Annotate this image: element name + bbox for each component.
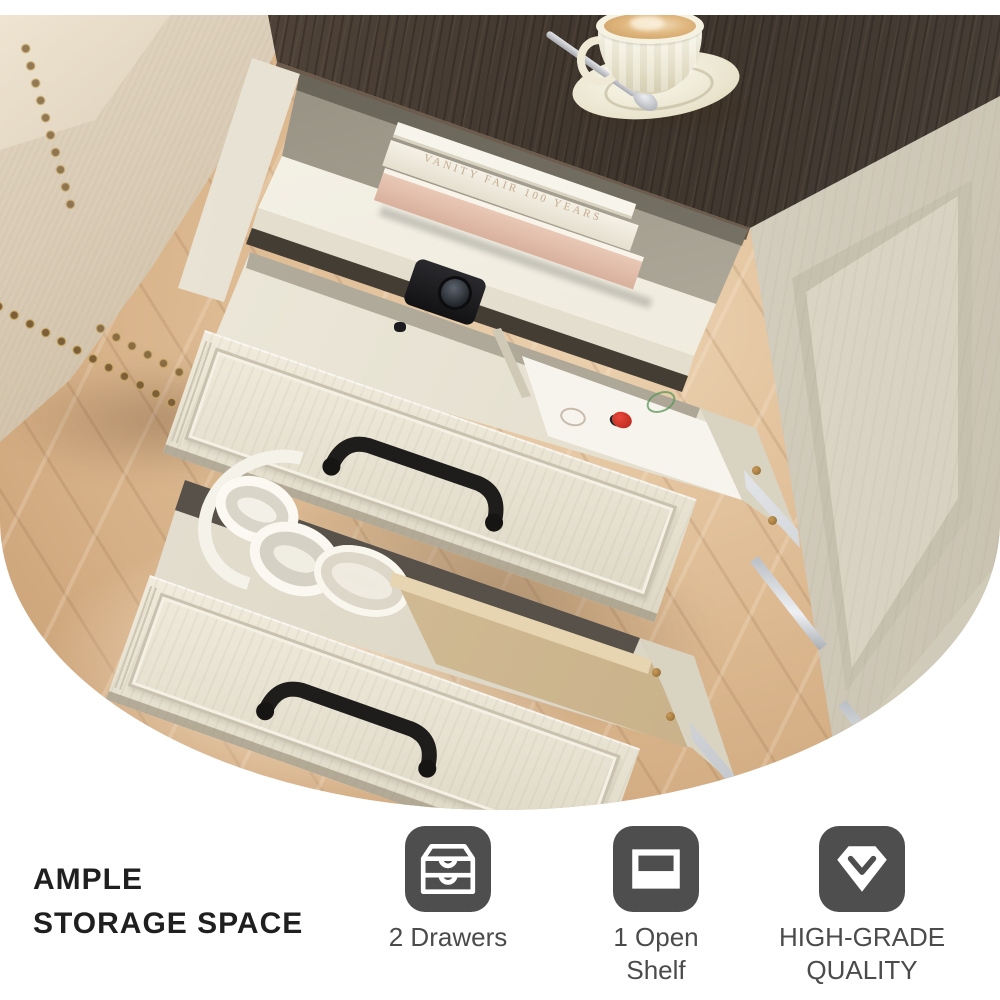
screw — [768, 516, 777, 525]
feature-open-shelf: 1 Open Shelf — [576, 826, 736, 987]
feature-label: 1 Open Shelf — [601, 921, 711, 987]
latte-foam — [630, 16, 664, 30]
heading-line-1: AMPLE — [33, 858, 363, 902]
drawers-icon — [405, 826, 491, 912]
screw — [752, 466, 761, 475]
room-scene: VANITY FAIR 100 YEARS — [0, 15, 1000, 810]
feature-label: 2 Drawers — [368, 921, 528, 954]
screw — [652, 668, 661, 677]
feature-quality: HIGH-GRADE QUALITY — [772, 826, 952, 987]
feature-label: HIGH-GRADE QUALITY — [777, 921, 947, 987]
screw — [666, 712, 675, 721]
section-heading: AMPLE STORAGE SPACE — [33, 858, 363, 946]
hero-photo: VANITY FAIR 100 YEARS — [0, 15, 1000, 810]
gem-check-icon — [819, 826, 905, 912]
heading-line-2: STORAGE SPACE — [33, 902, 363, 946]
product-image: VANITY FAIR 100 YEARS — [0, 0, 1000, 1000]
shelf-icon — [613, 826, 699, 912]
feature-drawers: 2 Drawers — [368, 826, 528, 954]
camera-strap-clip — [394, 322, 406, 332]
